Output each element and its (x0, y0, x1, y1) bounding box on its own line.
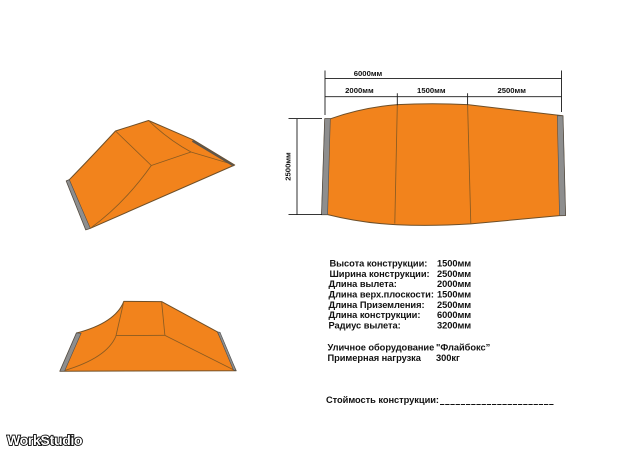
svg-text:6000мм: 6000мм (354, 69, 383, 78)
svg-text:2000мм: 2000мм (437, 279, 471, 289)
svg-text:Длина Приземления:: Длина Приземления: (329, 300, 425, 310)
svg-text:Радиус вылета:: Радиус вылета: (329, 321, 401, 331)
svg-text:Уличное оборудование: Уличное оборудование (328, 343, 435, 353)
svg-text:Ширина конструкции:: Ширина конструкции: (330, 269, 430, 279)
svg-text:2000мм: 2000мм (345, 86, 374, 95)
svg-text:2500мм: 2500мм (497, 86, 526, 95)
svg-text:2500мм: 2500мм (284, 152, 293, 181)
svg-text:WorkStudio: WorkStudio (7, 432, 82, 448)
svg-text:Примерная нагрузка: Примерная нагрузка (328, 353, 422, 363)
svg-text:2500мм: 2500мм (437, 269, 471, 279)
svg-text:Длина верх.плоскости:: Длина верх.плоскости: (329, 290, 434, 300)
svg-text:6000мм: 6000мм (437, 310, 471, 320)
svg-text:Длина вылета:: Длина вылета: (329, 279, 397, 289)
svg-text:3200мм: 3200мм (437, 321, 471, 331)
svg-text:"Флайбокс”: "Флайбокс” (436, 343, 490, 353)
svg-text:2500мм: 2500мм (437, 300, 471, 310)
svg-text:Стоймость конструкции:: Стоймость конструкции: (326, 395, 439, 405)
svg-text:Длина конструкции:: Длина конструкции: (329, 310, 421, 320)
svg-text:Высота конструкции:: Высота конструкции: (330, 258, 428, 268)
svg-text:1500мм: 1500мм (417, 86, 446, 95)
svg-text:300кг: 300кг (436, 353, 460, 363)
svg-text:1500мм: 1500мм (437, 290, 471, 300)
svg-text:1500мм: 1500мм (437, 258, 471, 268)
